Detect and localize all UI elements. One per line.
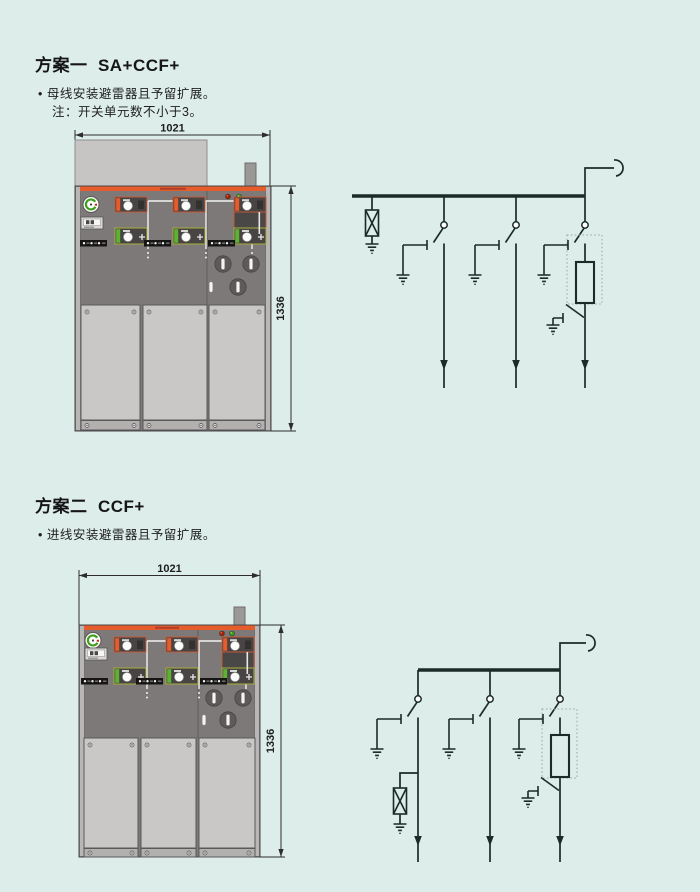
fuse-branch <box>513 670 578 862</box>
feeder-branch-2 <box>469 196 520 388</box>
fuse-branch <box>538 196 603 388</box>
surge-arrester-icon <box>394 788 407 814</box>
cable-arrow-icon <box>512 360 520 370</box>
stripe-nameplate <box>160 188 186 190</box>
terminal-strip-2 <box>136 678 163 685</box>
brand-logo-icon <box>85 633 101 649</box>
cable-bushing-2 <box>235 690 251 706</box>
earthing-switch-icon <box>469 240 500 285</box>
scheme1-note-1: • 母线安装避雷器且予留扩展。 <box>38 83 216 102</box>
cabinet-top-block <box>234 607 245 625</box>
earthing-switch-icon <box>371 714 402 759</box>
switch-blade <box>408 702 418 716</box>
feeder-branch <box>443 670 494 862</box>
cable-arrow-icon <box>440 360 448 370</box>
stripe-nameplate <box>155 627 179 629</box>
fuse-icon <box>551 735 569 777</box>
lower-earthing-switch <box>522 778 560 809</box>
cable-bushing-1 <box>206 690 222 706</box>
fuse-icon <box>576 262 594 303</box>
terminal-strip-2 <box>144 240 171 247</box>
arrester-tap <box>400 773 418 824</box>
switch-pivot <box>513 222 519 228</box>
cable-bushing-3 <box>220 712 236 728</box>
cabinet-lower-panels <box>81 305 265 430</box>
ground-icon <box>522 798 535 808</box>
earthing-switch-icon <box>443 714 474 759</box>
counter-display <box>81 217 103 229</box>
width-label: 1021 <box>160 123 184 135</box>
module3-label-strip <box>247 652 249 674</box>
scheme2-one-line-diagram <box>371 635 596 862</box>
terminal-strip-3 <box>200 678 227 685</box>
scheme1-title: 方案一 SA+CCF+ <box>35 51 180 76</box>
switch-blade <box>506 228 516 242</box>
switch-pivot <box>441 222 447 228</box>
incoming-line <box>585 160 623 196</box>
cable-arrow-icon <box>486 836 494 846</box>
counter-display <box>85 648 107 660</box>
module3-label-strip <box>259 212 261 234</box>
earthing-switch-icon <box>513 714 544 759</box>
switch-pivot <box>487 696 493 702</box>
cabinet-left-side <box>76 187 81 431</box>
incoming-line-hook-icon <box>586 635 595 651</box>
busbar-surge-arrester <box>366 196 379 254</box>
ground-icon <box>366 244 379 254</box>
ground-icon <box>547 325 560 335</box>
incoming-line-hook-icon <box>614 160 623 176</box>
scheme2-note-1: • 进线安装避雷器且予留扩展。 <box>38 524 216 543</box>
earthing-switch-icon <box>397 240 428 285</box>
height-label: 1336 <box>265 729 277 753</box>
width-label: 1021 <box>157 563 181 575</box>
scheme2-height-dimension: 1336 <box>260 625 285 857</box>
scheme1-cabinet-drawing: 1021 <box>75 123 296 432</box>
switch-blade <box>434 228 444 242</box>
cable-arrow-icon <box>556 836 564 846</box>
cable-bushing-1 <box>215 256 231 272</box>
red-indicator-led <box>226 194 231 199</box>
lower-earthing-switch <box>547 305 585 336</box>
cable-arrow-icon <box>581 360 589 370</box>
scheme1-one-line-diagram <box>352 160 623 388</box>
height-label: 1336 <box>275 296 287 320</box>
switch-pivot <box>557 696 563 702</box>
earthing-switch-icon <box>538 240 569 285</box>
red-indicator-led <box>220 631 225 636</box>
scheme1-height-dimension: 1336 <box>271 186 296 431</box>
cabinet-top-enclosure <box>75 140 207 186</box>
surge-arrester-icon <box>366 210 379 236</box>
cable-bushing-3 <box>230 279 246 295</box>
scheme1-note-2: 注：开关单元数不小于3。 <box>52 101 202 120</box>
catalog-page: 方案一 SA+CCF+ • 母线安装避雷器且予留扩展。 注：开关单元数不小于3。… <box>0 0 700 892</box>
scheme2-cabinet-drawing: 1021 <box>79 563 285 857</box>
cable-bushing-2 <box>243 256 259 272</box>
switch-pivot <box>582 222 588 228</box>
cable-arrow-icon <box>414 836 422 846</box>
green-indicator-led <box>230 631 235 636</box>
scheme2-title: 方案二 CCF+ <box>35 492 145 517</box>
incoming-line <box>560 635 595 670</box>
cabinet-top-block <box>245 163 256 186</box>
terminal-strip-3 <box>208 240 235 247</box>
switch-blade <box>480 702 490 716</box>
terminal-strip-1 <box>80 240 107 247</box>
scheme2-figure: 1021 <box>0 556 700 892</box>
cabinet-lower-panels <box>84 738 255 857</box>
incoming-branch-with-arrester <box>371 670 422 862</box>
feeder-branch-1 <box>397 196 448 388</box>
brand-logo-icon <box>83 197 99 213</box>
scheme1-figure: 1021 <box>0 120 700 454</box>
switch-pivot <box>415 696 421 702</box>
terminal-strip-1 <box>81 678 108 685</box>
scheme2-width-dimension: 1021 <box>79 563 260 625</box>
ground-icon <box>394 824 407 834</box>
